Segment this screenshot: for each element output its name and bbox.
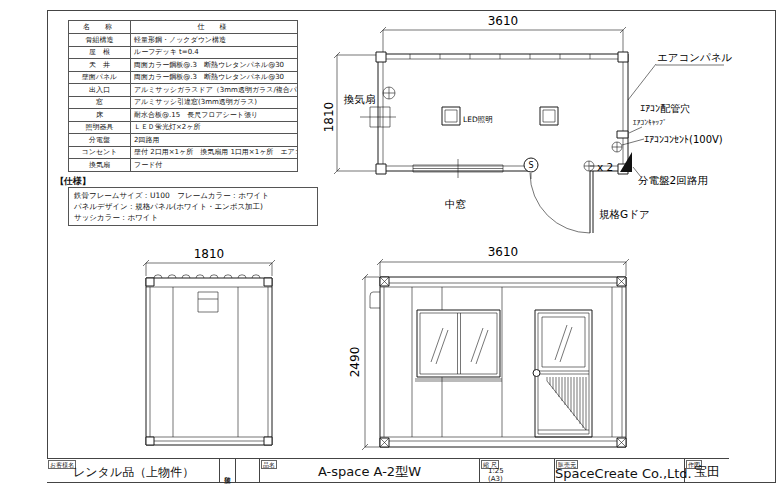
spec-row-value: 両面カラー鋼板@.3 断熱ウレタンパネル@30	[131, 71, 298, 84]
title-block-customer-cell: お客様名 レンタル品（上物件）	[47, 459, 220, 482]
notes-box: 鉄骨フレームサイズ：U100 フレームカラー：ホワイトパネルデザイン：規格パネル…	[68, 187, 318, 226]
title-block-product-cell: 品名 A-space A-2型W	[260, 459, 480, 482]
spec-row-name: 照明器具	[69, 121, 131, 134]
spec-row-value: フード付	[131, 159, 298, 172]
plan-dim-width: 3610	[380, 14, 626, 53]
scale-size-value: (A3)	[488, 475, 503, 483]
spec-row-name: 壁面パネル	[69, 71, 131, 84]
side-body	[146, 275, 272, 445]
side-vent-hood	[198, 292, 218, 312]
spec-table-body: 名 称 仕 様 骨組構造軽量形鋼・ノックダウン構造屋 根ルーフデッキ t=0.4…	[69, 21, 298, 172]
ac-outlet-label: ｴｱｺﾝｺﾝｾﾝﾄ(100V)	[644, 134, 723, 145]
ac-pipe-hole-label: ｴｱｺﾝ配管穴	[640, 103, 690, 114]
spec-row-value: ルーフデッキ t=0.4	[131, 46, 298, 59]
door-label: 規格Gドア	[599, 208, 650, 220]
title-block-scale-cell: 縮 尺 1:25 (A3)	[480, 459, 555, 482]
plan-view: 3610 1810	[300, 5, 780, 250]
spec-table-row: 窓アルミサッシ引違窓(3mm透明ガラス)	[69, 96, 298, 109]
ac-outlet-symbol	[612, 142, 622, 152]
front-dim-width: 3610	[377, 245, 629, 276]
switch-symbol: S	[524, 158, 538, 179]
spec-row-value: 2回路用	[131, 134, 298, 147]
ac-cap-label: ｴｱｺﾝｷｬｯﾌﾟ	[633, 118, 667, 127]
vent-fan-label: 換気扇	[343, 93, 376, 105]
ac-pipe-hole-symbol	[617, 131, 628, 138]
notes-line: パネルデザイン：規格パネル(ホワイト・エンボス加工)	[74, 201, 312, 212]
notes-line: 鉄骨フレームサイズ：U100 フレームカラー：ホワイト	[74, 190, 312, 201]
spec-row-name: 床	[69, 109, 131, 122]
outlet-x2-label: x 2	[597, 161, 613, 173]
spec-table-row: 換気扇フード付	[69, 159, 298, 172]
led-label: LED照明	[463, 115, 493, 124]
spec-row-name: 出入口	[69, 84, 131, 97]
stamp-label: 確認印	[224, 460, 232, 483]
scale-value: 1:25	[488, 467, 504, 475]
led-light-symbols	[442, 107, 558, 125]
spec-row-name: コンセント	[69, 146, 131, 159]
spec-table-row: 屋 根ルーフデッキ t=0.4	[69, 46, 298, 59]
switch-symbol-text: S	[528, 161, 533, 170]
plan-walls	[376, 52, 628, 174]
spec-table-row: 壁面パネル両面カラー鋼板@.3 断熱ウレタンパネル@30	[69, 71, 298, 84]
plan-dim-depth-text: 1810	[322, 102, 336, 133]
plan-annotations: エアコンパネル ｴｱｺﾝ配管穴 ｴｱｺﾝｷｬｯﾌﾟ ｴｱｺﾝｺﾝｾﾝﾄ(100V…	[445, 51, 732, 220]
title-block-maker-cell: 販売元 SpaceCreate Co.,Ltd.	[555, 459, 685, 482]
spec-table-row: コンセント壁付 2口用×1ヶ所 換気扇用 1口用×1ヶ所 エアコン用：1口×1ヶ…	[69, 146, 298, 159]
spec-table-row: 分電盤2回路用	[69, 134, 298, 147]
mid-window-label: 中窓	[445, 198, 466, 210]
door-handle	[533, 370, 540, 377]
spec-table-row: 骨組構造軽量形鋼・ノックダウン構造	[69, 34, 298, 47]
spec-row-value: アルミサッシ引違窓(3mm透明ガラス)	[131, 96, 298, 109]
spec-row-value: 耐水合板@.15 長尺フロアシート張り	[131, 109, 298, 122]
spec-header-spec: 仕 様	[131, 21, 298, 34]
spec-table-row: 床耐水合板@.15 長尺フロアシート張り	[69, 109, 298, 122]
outlet-x2-symbol: x 2	[584, 161, 613, 173]
front-dim-height: 2490	[348, 274, 380, 450]
drawing-page: 名 称 仕 様 骨組構造軽量形鋼・ノックダウン構造屋 根ルーフデッキ t=0.4…	[0, 0, 780, 490]
spec-row-name: 窓	[69, 96, 131, 109]
title-block: お客様名 レンタル品（上物件） 確認印 品名 A-space A-2型W 縮 尺…	[47, 458, 729, 483]
breaker-label: 分電盤2回路用	[638, 174, 708, 186]
plan-dim-width-text: 3610	[488, 14, 519, 28]
plan-mid-window	[413, 159, 503, 178]
spec-header-name: 名 称	[69, 21, 131, 34]
side-dim-width-text: 1810	[194, 247, 225, 261]
plan-dim-depth: 1810	[322, 52, 377, 174]
front-dim-width-text: 3610	[488, 245, 519, 259]
front-door	[533, 310, 592, 437]
spec-table-row: 天 井両面カラー鋼板@.3 断熱ウレタンパネル@30	[69, 59, 298, 72]
front-window	[415, 310, 502, 381]
product-value: A-space A-2型W	[260, 463, 479, 481]
front-elevation: 3610 2490	[345, 240, 645, 455]
spec-row-value: 壁付 2口用×1ヶ所 換気扇用 1口用×1ヶ所 エアコン用：1口×1ヶ所	[131, 146, 298, 159]
maker-value: SpaceCreate Co.,Ltd.	[555, 466, 684, 481]
spec-row-value: ＬＥＤ蛍光灯×2ヶ所	[131, 121, 298, 134]
side-dim-width: 1810	[143, 247, 275, 276]
spec-row-name: 換気扇	[69, 159, 131, 172]
front-body	[370, 277, 626, 447]
front-dim-height-text: 2490	[348, 347, 362, 378]
side-elevation: 1810	[115, 240, 315, 455]
ac-panel-label: エアコンパネル	[657, 51, 732, 63]
spec-row-name: 骨組構造	[69, 34, 131, 47]
spec-row-name: 分電盤	[69, 134, 131, 147]
customer-value: レンタル品（上物件）	[47, 464, 219, 481]
title-block-drawer-cell: 作図 宝田	[685, 459, 729, 482]
spec-table-header-row: 名 称 仕 様	[69, 21, 298, 34]
spec-row-value: 両面カラー鋼板@.3 断熱ウレタンパネル@30	[131, 59, 298, 72]
drawer-value: 宝田	[685, 463, 729, 481]
plan-door	[530, 171, 593, 233]
spec-row-value: アルミサッシガラスドア（3mm透明ガラス/複合パネル）	[131, 84, 298, 97]
spec-row-value: 軽量形鋼・ノックダウン構造	[131, 34, 298, 47]
notes-list: 鉄骨フレームサイズ：U100 フレームカラー：ホワイトパネルデザイン：規格パネル…	[74, 190, 312, 223]
title-block-stamp-cell: 確認印	[220, 459, 236, 482]
spec-table-row: 出入口アルミサッシガラスドア（3mm透明ガラス/複合パネル）	[69, 84, 298, 97]
title-block-blank-cell	[236, 459, 260, 482]
spec-row-name: 天 井	[69, 59, 131, 72]
notes-line: サッシカラー：ホワイト	[74, 212, 312, 223]
spec-table: 名 称 仕 様 骨組構造軽量形鋼・ノックダウン構造屋 根ルーフデッキ t=0.4…	[68, 20, 298, 172]
spec-table-row: 照明器具ＬＥＤ蛍光灯×2ヶ所	[69, 121, 298, 134]
spec-row-name: 屋 根	[69, 46, 131, 59]
